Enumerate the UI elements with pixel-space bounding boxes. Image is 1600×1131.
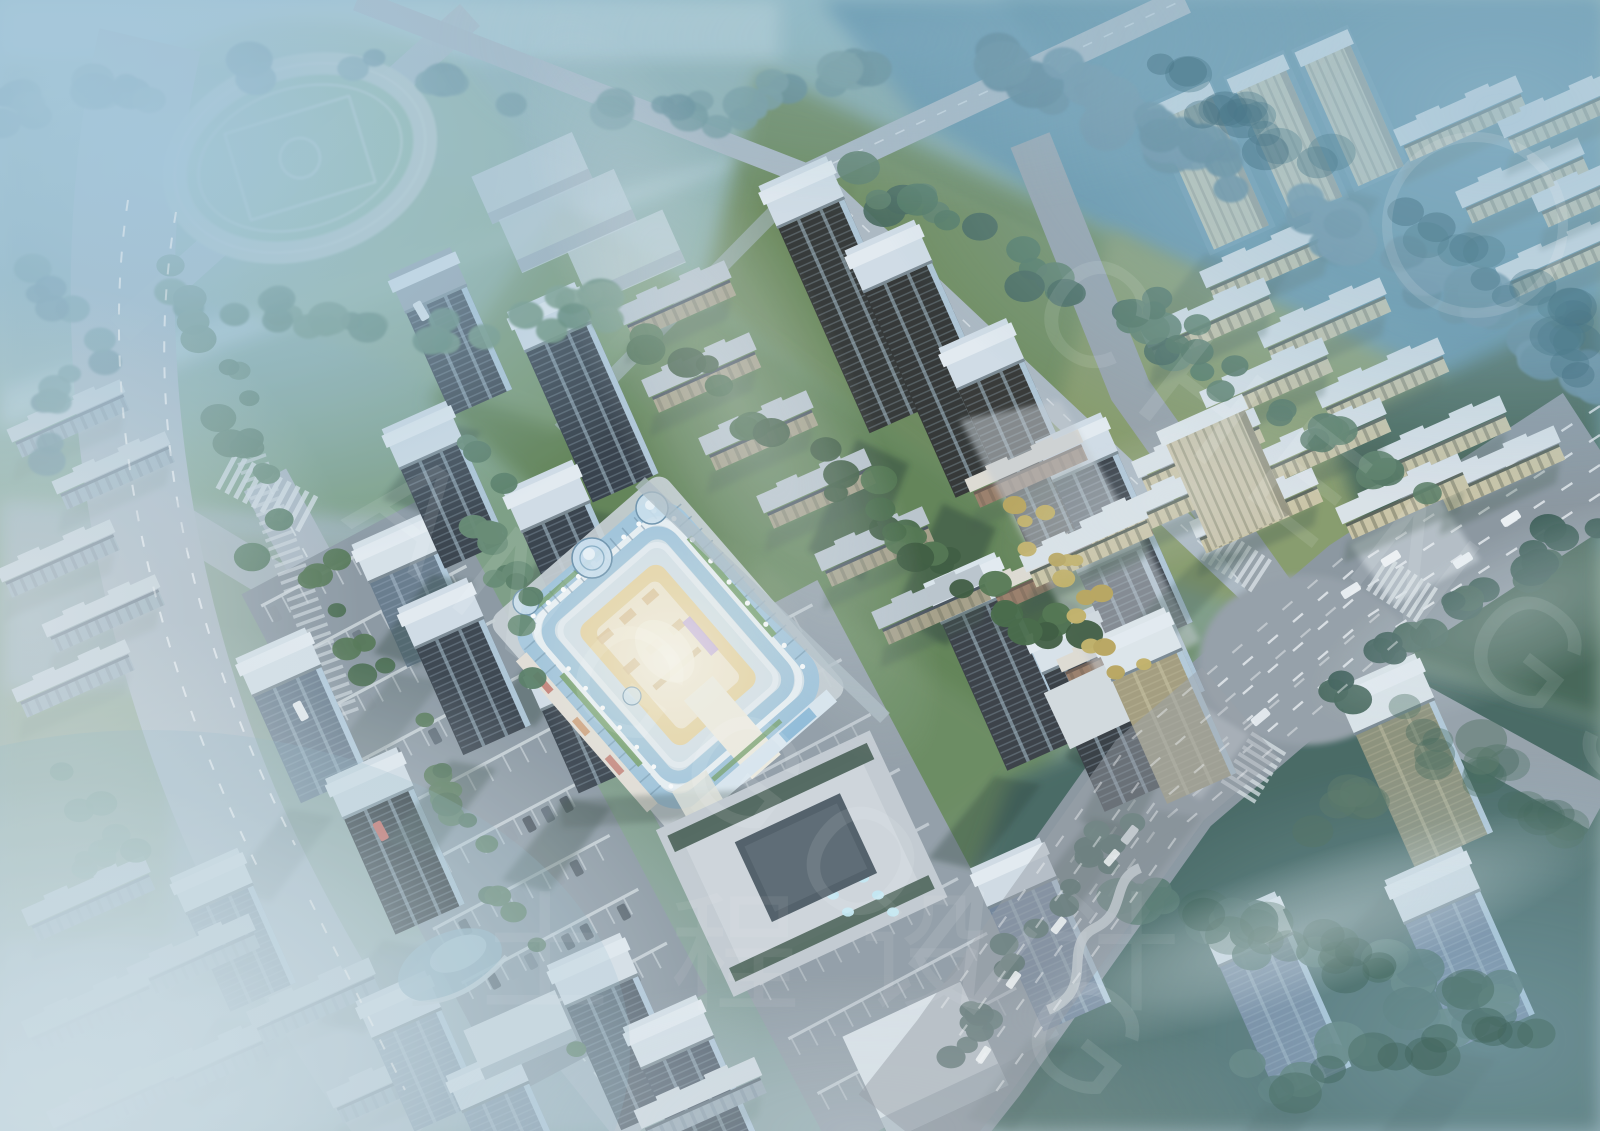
svg-text:土程设计: 土程设计 bbox=[480, 882, 1240, 1028]
